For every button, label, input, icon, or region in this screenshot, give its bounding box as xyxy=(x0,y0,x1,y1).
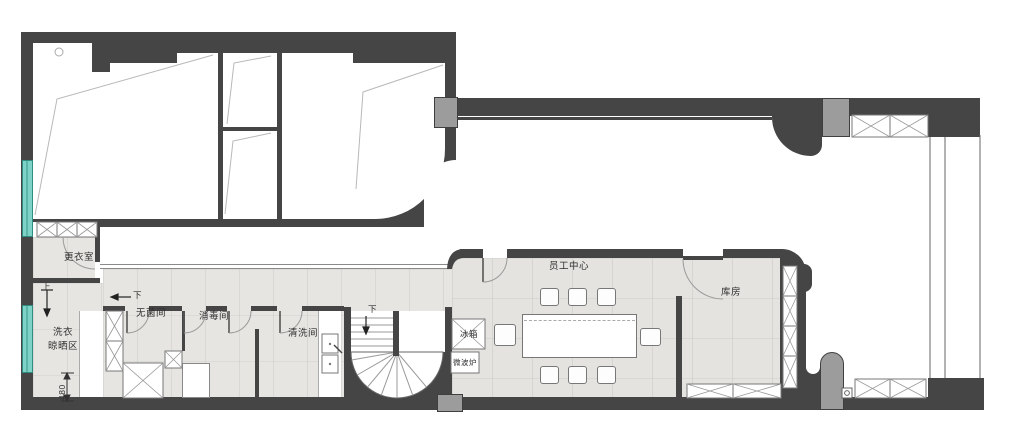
room-label-sterile: 无菌间 xyxy=(136,308,166,320)
floor-plan-canvas: 更衣室 洗衣 晾晒区 上 下 无菌间 消毒间 清洗间 下 冰箱 微波炉 员工中心… xyxy=(0,0,1018,432)
room-label-staff-center: 员工中心 xyxy=(549,261,589,273)
fixture-label-fridge: 冰箱 xyxy=(460,328,478,340)
stair-down-label-corridor: 下 xyxy=(133,289,142,301)
room-label-washing: 清洗间 xyxy=(288,328,318,340)
fixture-label-microwave: 微波炉 xyxy=(453,357,477,369)
plan-linework xyxy=(0,0,1018,432)
room-label-changing: 更衣室 xyxy=(64,252,94,264)
room-label-laundry-line1: 洗衣 xyxy=(53,327,73,339)
stair-up-label: 上 xyxy=(42,281,51,293)
dimension-label-480: 480 xyxy=(56,384,68,400)
room-label-laundry-line2: 晾晒区 xyxy=(48,341,78,353)
room-label-disinfection: 消毒间 xyxy=(199,311,229,323)
stair-down-label: 下 xyxy=(368,303,377,315)
room-label-storage: 库房 xyxy=(721,287,741,299)
